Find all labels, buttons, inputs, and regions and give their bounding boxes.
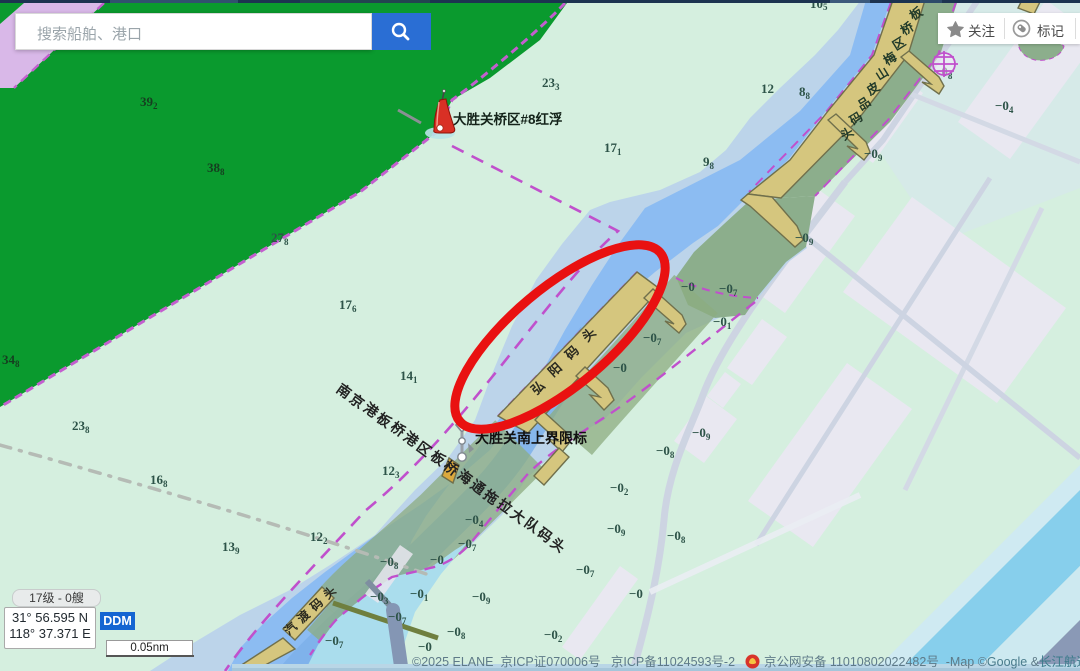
svg-text:−0: −0 <box>629 586 643 601</box>
svg-text:−0: −0 <box>613 360 627 375</box>
svg-text:−0: −0 <box>681 279 695 294</box>
svg-text:12: 12 <box>761 81 774 96</box>
svg-text:−0: −0 <box>430 552 444 567</box>
svg-text:大胜关桥区#8红浮: 大胜关桥区#8红浮 <box>453 111 563 127</box>
